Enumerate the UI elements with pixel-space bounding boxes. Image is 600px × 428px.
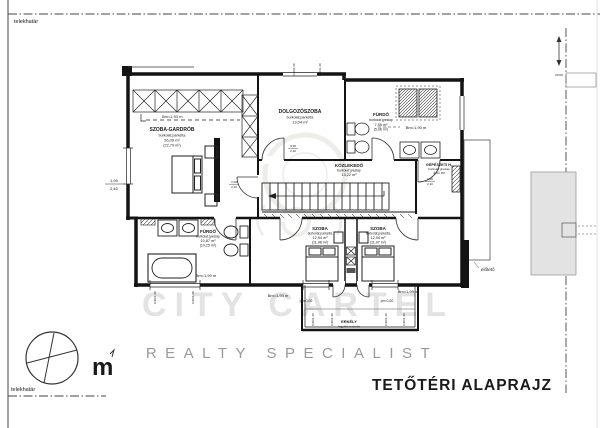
room-furdo-top-height: Bm=1,90 m: [406, 125, 427, 130]
door2-dim-w: 0,90: [290, 144, 296, 148]
room-furdo-lower-area-reduced: (10,25 m²): [200, 244, 217, 248]
win-small-dim-2: 0,90/1,40: [191, 291, 195, 304]
room-szoba-right-area-reduced: (11,97 m²): [370, 241, 386, 245]
room-furdo-top-area: 7,55 m²: [375, 123, 389, 127]
room-dolgozo-name: DOLGOZÓSZOBA: [279, 107, 322, 115]
shaft-boxes: [347, 247, 356, 273]
door3-dim-h: 2,10: [427, 182, 433, 186]
room-furdo-lower-area: 10,87 m²: [201, 239, 217, 243]
win-small-dim-1: 0,90/1,40: [153, 291, 157, 304]
door-dim-h: 2,10: [231, 185, 237, 189]
room-erkely-name: ERKÉLY: [341, 319, 357, 324]
room-dolgozo-area: 13,04 m²: [292, 120, 308, 125]
room-gardrob-height: Bm=1,93 m: [162, 114, 183, 119]
room-furdo-lower-name: FÜRDŐ: [200, 228, 216, 234]
boundary-label-top: telekhatár: [14, 19, 38, 25]
win-small-dim-8: 0,90/1,40: [318, 63, 322, 76]
room-kozlekedo-area: 13,22 m²: [342, 173, 358, 177]
height-left-label: Bm=1,93 m: [268, 293, 289, 298]
room-szoba-left-finish: burkolat:parketta: [308, 232, 333, 236]
win-small-dim-4: 0,90/1,40: [330, 313, 334, 326]
room-furdo-lower-height: Bm=1,90 m: [196, 273, 217, 278]
room-gepeszeti-area: 4,61 m²: [433, 171, 445, 175]
room-gardrob-area: 26,09 m²: [164, 138, 180, 143]
bed-gardrob: [172, 146, 217, 206]
room-furdo-top-name: FÜRDŐ: [373, 111, 389, 117]
height-right-label: Bm=1,99 m: [398, 289, 419, 294]
neighbor-building: [531, 36, 596, 275]
room-kozlekedo-name: KÖZLEKEDŐ: [335, 162, 364, 168]
room-furdo-lower-finish: burkolat:greslap: [196, 235, 220, 239]
bathroom-top-fixtures: [347, 86, 440, 158]
room-kozlekedo-finish: burkolat:greslap: [337, 169, 361, 173]
bathroom-lower-fixtures: [141, 219, 248, 282]
room-gardrob-name: SZOBA-GARDRÓB: [150, 125, 195, 133]
room-szoba-right-name: SZOBA: [370, 226, 387, 231]
room-szoba-left-area-reduced: (11,98 m²): [312, 241, 328, 245]
watermark-tagline-text: REALTY SPECIALIST: [146, 345, 438, 362]
level-right-label: pm 0,00: [381, 299, 394, 303]
room-szoba-left-area: 12,94 m²: [313, 236, 329, 240]
wardrobe-hatch: [133, 90, 258, 157]
room-szoba-right-finish: burkolat:parketta: [366, 232, 391, 236]
north-symbol-label: m: [92, 354, 113, 381]
floorplan-sheet: CITY CARTEL REALTY SPECIALIST telekhatár…: [0, 0, 600, 428]
level-left-label: pm 0,00: [300, 299, 313, 303]
window-dim-w: 1,95: [110, 178, 119, 183]
room-szoba-right-area: 12,94 m²: [371, 236, 387, 240]
window-dim-h: 2,40: [110, 186, 119, 191]
win-small-dim-5: 0,90/1,40: [384, 313, 388, 326]
room-szoba-left-name: SZOBA: [312, 226, 329, 231]
door2-dim-h: 2,10: [290, 149, 296, 153]
mechanical-room-fixtures: [452, 166, 460, 192]
room-gardrob-area-reduced: (22,79 m²): [163, 144, 181, 148]
win-small-dim-6: 0,90/1,40: [402, 313, 406, 326]
drawing-title: TETŐTÉRI ALAPRAJZ: [372, 376, 552, 394]
floorplan-drawing: CITY CARTEL REALTY SPECIALIST telekhatár…: [0, 0, 600, 428]
door3-dim-w: 1,00: [427, 177, 433, 181]
door-dim-w: 1,00: [231, 180, 237, 184]
room-furdo-top-area-reduced: (5,96 m²): [374, 128, 389, 132]
win-small-dim-7: 0,90/1,40: [292, 63, 296, 76]
canopy-label: előtető: [481, 267, 495, 272]
room-erkely-finish: fagyálló burkolat: [338, 325, 360, 329]
room-furdo-top-finish: burkolat:greslap: [369, 118, 393, 122]
boundary-label-bottom: telekhatár: [11, 387, 35, 393]
win-small-dim-3: 0,90/1,40: [311, 313, 315, 326]
